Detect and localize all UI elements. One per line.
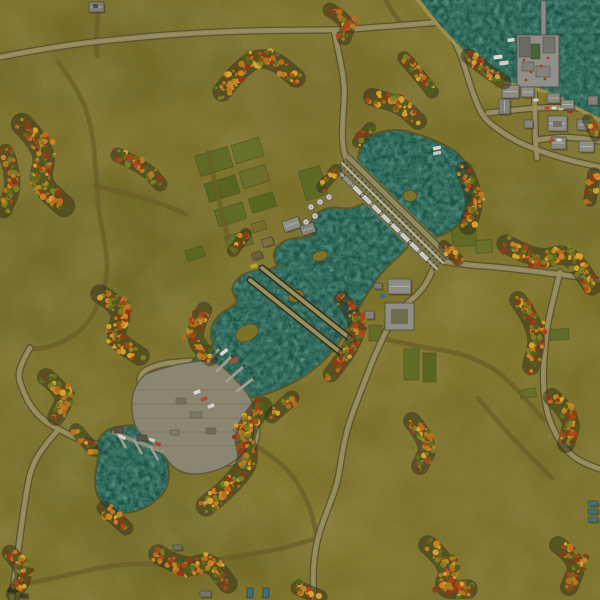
vehicle xyxy=(559,108,564,111)
game-map-canvas[interactable] xyxy=(0,0,600,600)
courtyard xyxy=(553,121,562,127)
dock-shed xyxy=(114,427,123,433)
harbor-detail xyxy=(525,79,528,82)
harbor-structure xyxy=(536,66,550,77)
building xyxy=(499,99,511,116)
building xyxy=(173,545,183,552)
harbor-structure xyxy=(522,62,534,71)
harbor-detail xyxy=(523,59,526,62)
building xyxy=(388,279,412,296)
courtyard xyxy=(391,309,408,324)
vehicle xyxy=(568,111,573,114)
building xyxy=(521,87,535,99)
building xyxy=(374,283,383,291)
building xyxy=(524,120,534,130)
field-plot xyxy=(423,353,436,382)
container xyxy=(190,412,202,418)
island xyxy=(403,191,417,202)
vehicle xyxy=(380,294,386,298)
dirt-road xyxy=(96,14,98,56)
vehicle xyxy=(552,107,557,110)
building xyxy=(588,509,599,516)
screenshot-root xyxy=(0,0,600,600)
building xyxy=(588,96,599,107)
container xyxy=(206,428,216,434)
harbor-structure xyxy=(519,37,530,57)
dock-shed xyxy=(137,435,147,441)
truck xyxy=(247,588,253,598)
harbor-detail xyxy=(544,78,547,81)
building xyxy=(547,93,561,105)
harbor-detail xyxy=(540,65,543,68)
harbor-pier xyxy=(541,1,546,36)
vehicle xyxy=(550,139,555,142)
field-plot xyxy=(404,349,419,380)
building xyxy=(588,501,599,508)
vehicle xyxy=(545,107,550,110)
vehicle xyxy=(534,99,539,102)
container xyxy=(170,430,179,435)
building xyxy=(579,141,595,154)
harbor-detail xyxy=(530,71,533,74)
truck xyxy=(263,588,269,598)
harbor-structure xyxy=(543,37,555,53)
field-plot xyxy=(476,239,493,253)
harbor-detail xyxy=(547,57,550,60)
harbor-structure xyxy=(531,44,540,59)
vehicle xyxy=(557,139,562,142)
building xyxy=(588,517,599,524)
container xyxy=(176,398,186,404)
building xyxy=(200,591,212,599)
